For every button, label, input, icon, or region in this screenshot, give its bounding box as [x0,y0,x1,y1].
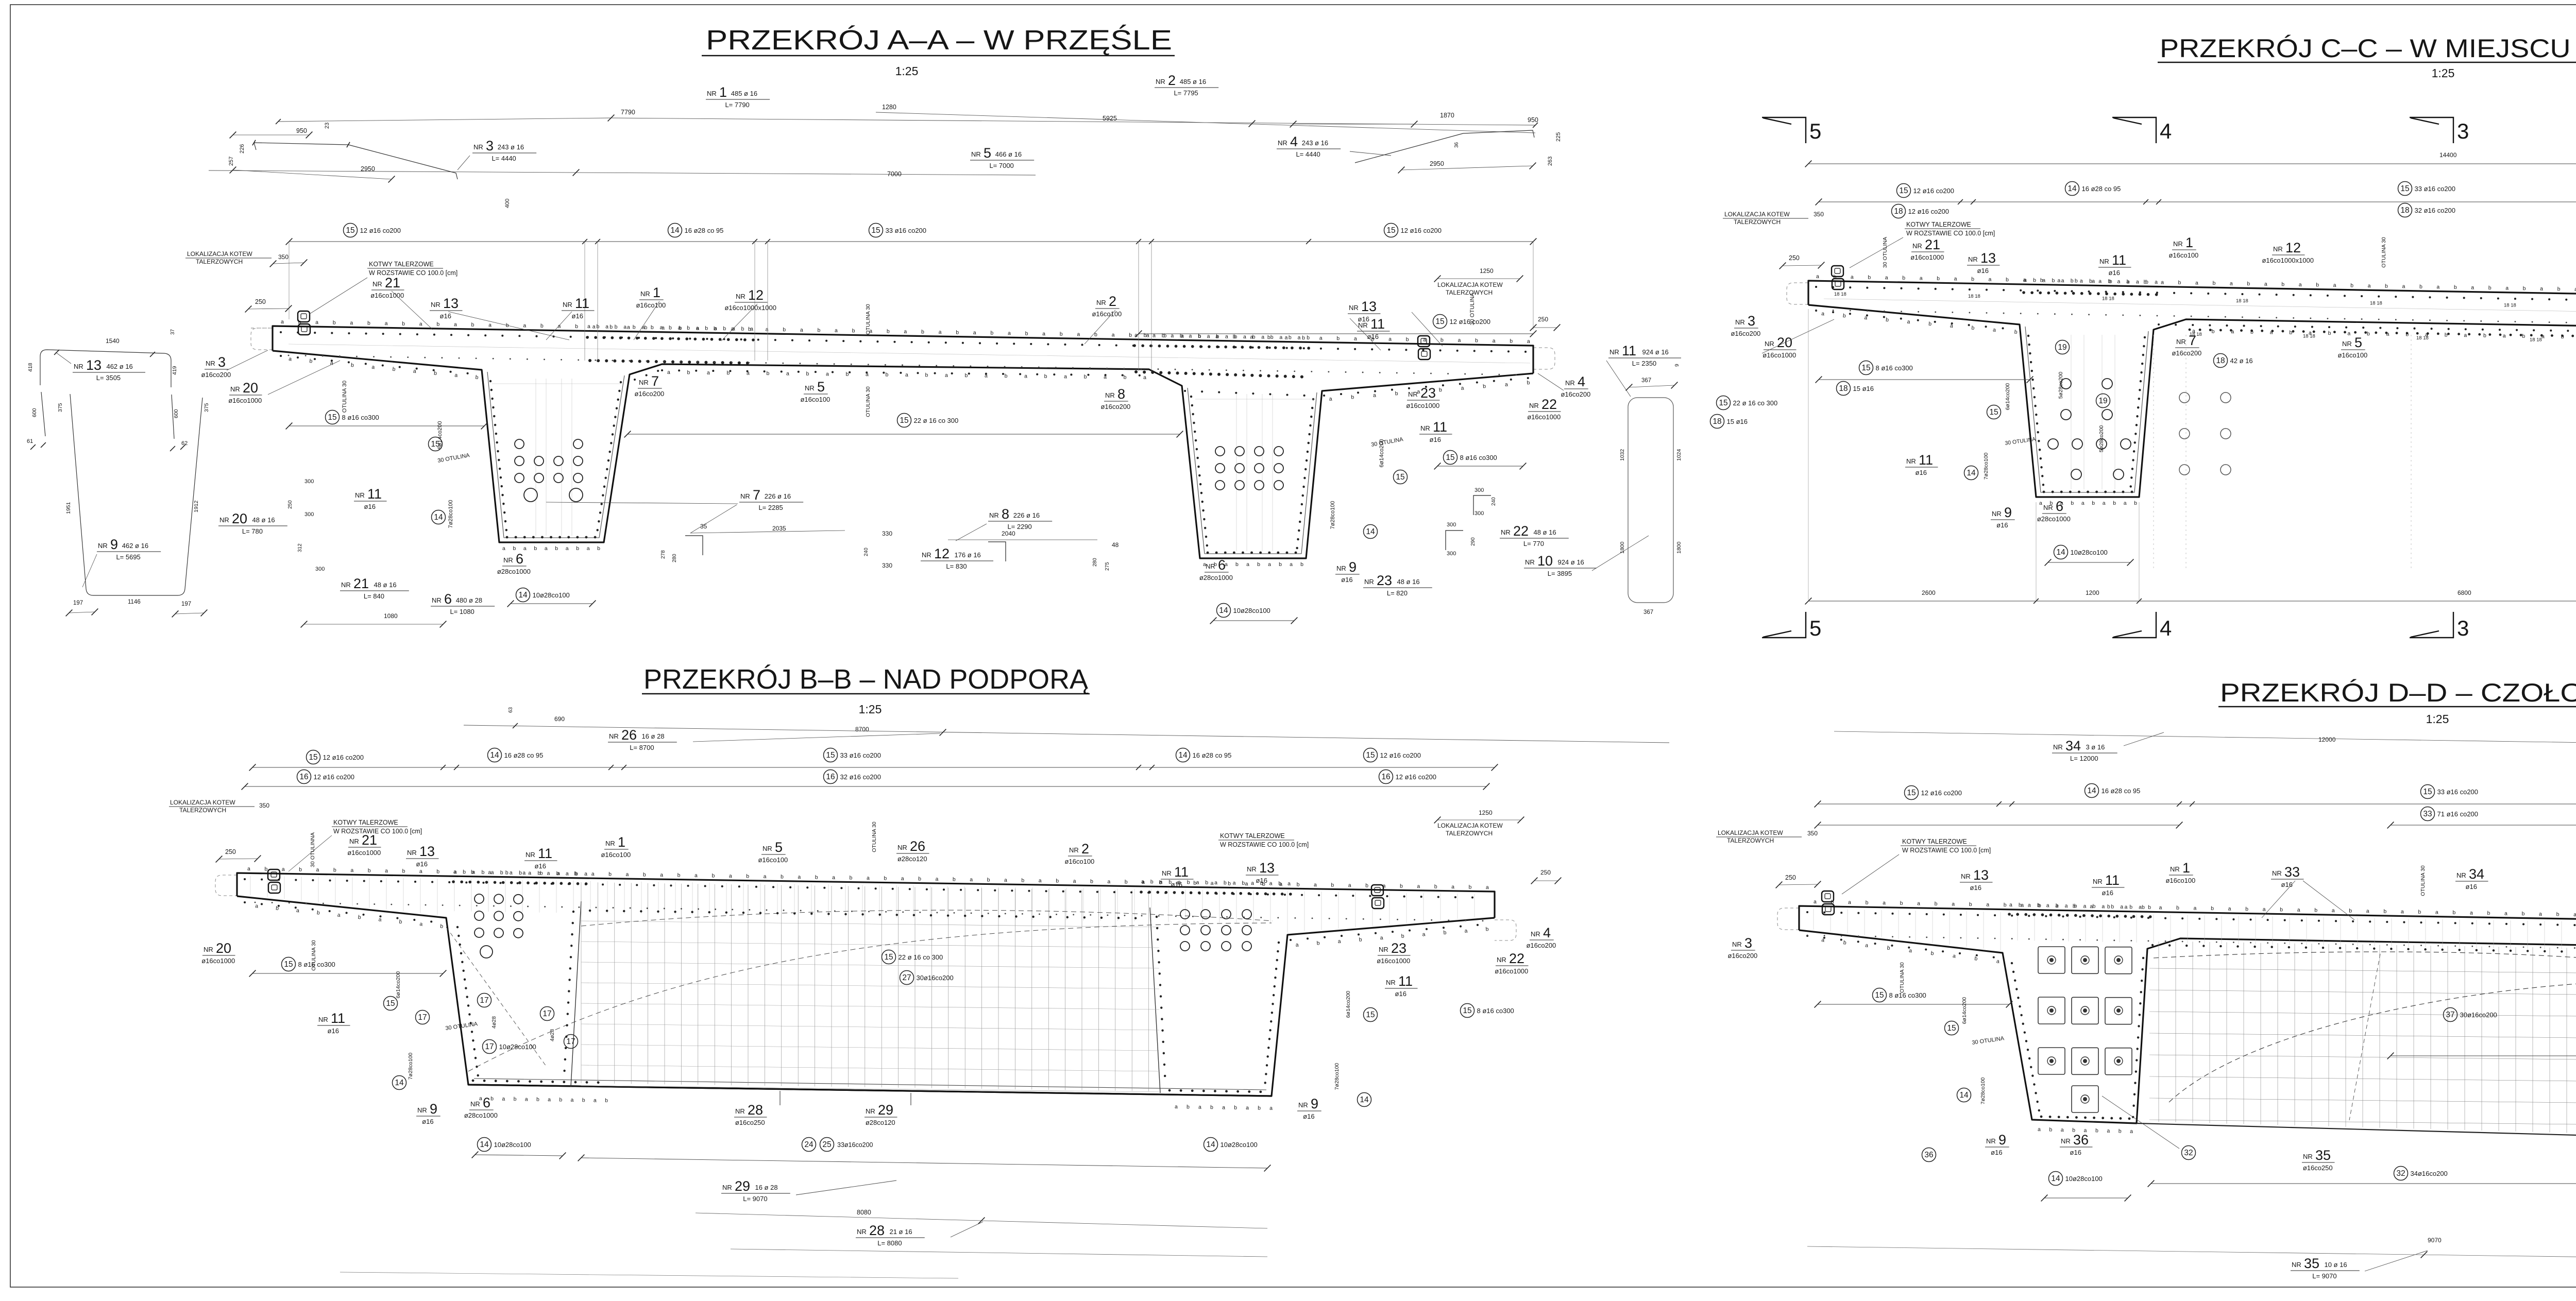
svg-text:29: 29 [735,1178,750,1194]
svg-text:NR: NR [1105,391,1115,399]
svg-text:NR: NR [230,385,240,393]
svg-text:18: 18 [1713,417,1721,426]
svg-text:33 ø16 co200: 33 ø16 co200 [886,227,927,234]
svg-text:2: 2 [1081,841,1089,857]
svg-text:16 ø28 co 95: 16 ø28 co 95 [685,227,724,234]
svg-text:34: 34 [2469,866,2484,882]
svg-text:15 ø16: 15 ø16 [1853,385,1874,392]
svg-text:L= 5695: L= 5695 [116,553,140,561]
svg-text:300: 300 [1475,510,1484,517]
svg-text:21: 21 [362,832,377,848]
svg-text:ø16: ø16 [440,312,451,320]
svg-text:ø16co200: ø16co200 [1727,952,1757,960]
svg-text:13: 13 [1980,250,1996,266]
svg-text:1: 1 [653,285,660,300]
svg-text:ø16: ø16 [2281,881,2293,888]
svg-text:1080: 1080 [384,612,398,620]
svg-text:18 18: 18 18 [1968,294,1980,299]
svg-text:34ø16co200: 34ø16co200 [2411,1170,2448,1177]
svg-text:15: 15 [284,960,293,969]
svg-text:14: 14 [434,513,443,522]
svg-text:14: 14 [480,1140,489,1149]
svg-text:L= 1080: L= 1080 [450,608,474,615]
svg-text:10ø28co100: 10ø28co100 [1233,607,1270,614]
svg-text:485 ø 16: 485 ø 16 [731,90,757,97]
svg-text:NR: NR [503,556,513,564]
svg-text:PRZEKRÓJ A–A – W PRZĘŚLE: PRZEKRÓJ A–A – W PRZĘŚLE [706,24,1172,56]
svg-text:15: 15 [1989,408,1998,417]
svg-text:250: 250 [1789,254,1800,262]
svg-text:367: 367 [1643,609,1653,615]
svg-text:2600: 2600 [1922,589,1936,596]
svg-text:NR: NR [971,150,981,158]
svg-text:37: 37 [170,329,176,335]
svg-text:7ø28co100: 7ø28co100 [408,1053,414,1080]
svg-text:LOKALIZACJA KOTEW: LOKALIZACJA KOTEW [1718,829,1783,836]
svg-text:14: 14 [518,591,528,600]
svg-text:NR: NR [1992,510,2002,518]
svg-text:1:25: 1:25 [895,64,919,78]
svg-text:NR: NR [1735,318,1745,326]
svg-text:19: 19 [2098,397,2107,405]
svg-text:ø16co100: ø16co100 [2168,251,2198,259]
svg-text:30 OTULINA: 30 OTULINA [1882,237,1888,268]
svg-text:NR: NR [897,844,907,851]
svg-text:ø16: ø16 [535,862,546,870]
svg-text:330: 330 [882,562,892,569]
svg-text:1024: 1024 [1676,449,1682,461]
svg-text:ø16: ø16 [416,860,428,868]
svg-text:15: 15 [1366,751,1375,760]
svg-text:243 ø 16: 243 ø 16 [1302,139,1328,147]
svg-text:7000: 7000 [887,170,902,178]
svg-text:ø28co1000: ø28co1000 [497,568,531,575]
svg-text:L= 840: L= 840 [364,592,384,600]
svg-text:418: 418 [27,363,33,372]
svg-text:13: 13 [443,296,459,311]
svg-text:4: 4 [1578,374,1585,389]
svg-text:240: 240 [1491,497,1497,506]
svg-text:OTULINA 30: OTULINA 30 [342,381,348,413]
svg-text:14: 14 [2051,1174,2060,1183]
svg-text:22 ø 16 co 300: 22 ø 16 co 300 [899,953,943,961]
svg-text:ø28co1000: ø28co1000 [2037,515,2071,523]
svg-text:ø16: ø16 [364,503,376,510]
svg-text:5: 5 [2354,335,2362,350]
svg-text:W ROZSTAWIE CO 100.0 [cm]: W ROZSTAWIE CO 100.0 [cm] [369,269,457,277]
svg-text:36: 36 [2073,1132,2089,1148]
svg-text:21: 21 [385,275,400,290]
svg-text:15: 15 [1386,226,1395,235]
svg-text:TALERZOWYCH: TALERZOWYCH [1446,830,1493,837]
svg-text:TALERZOWYCH: TALERZOWYCH [196,258,243,265]
svg-text:14: 14 [1178,751,1188,760]
svg-text:33: 33 [2423,810,2432,818]
svg-text:18 18: 18 18 [2303,334,2315,339]
svg-text:22: 22 [1509,951,1524,966]
svg-text:6ø14co200: 6ø14co200 [1961,997,1968,1024]
svg-text:6: 6 [483,1095,490,1110]
svg-text:32 ø16 co200: 32 ø16 co200 [2415,207,2456,214]
svg-text:9: 9 [1311,1096,1318,1111]
svg-text:1800: 1800 [1676,541,1682,554]
svg-text:ø16: ø16 [1996,521,2008,529]
svg-text:28: 28 [748,1102,763,1118]
svg-text:PRZEKRÓJ B–B – NAD PODPORĄ: PRZEKRÓJ B–B – NAD PODPORĄ [643,664,1089,695]
svg-text:10ø28co100: 10ø28co100 [499,1043,536,1051]
svg-text:L= 7000: L= 7000 [989,162,1013,169]
svg-text:12 ø16 co200: 12 ø16 co200 [360,227,401,234]
svg-text:15: 15 [1435,317,1444,326]
svg-text:26: 26 [910,838,925,854]
svg-text:NR: NR [1961,872,1971,880]
svg-text:9: 9 [430,1101,437,1117]
svg-text:ø28co120: ø28co120 [897,855,927,863]
svg-text:23: 23 [1391,940,1406,956]
svg-text:NR: NR [922,551,931,559]
svg-text:4: 4 [2160,119,2172,143]
svg-text:8 ø16 co300: 8 ø16 co300 [1477,1007,1514,1015]
svg-text:NR: NR [341,581,351,589]
svg-text:ø16: ø16 [1171,881,1182,888]
svg-text:18 18: 18 18 [2102,296,2114,302]
svg-text:ø16co200: ø16co200 [1561,390,1590,398]
svg-text:1:25: 1:25 [2432,66,2455,80]
svg-text:3: 3 [2457,119,2469,143]
svg-text:NR: NR [736,293,745,300]
svg-text:8 ø16 co300: 8 ø16 co300 [298,961,335,968]
svg-text:NR: NR [722,1184,732,1191]
svg-text:NR: NR [639,379,649,386]
svg-text:ø16co1000: ø16co1000 [1377,957,1410,965]
svg-text:L= 780: L= 780 [242,527,263,535]
svg-text:NR: NR [1379,946,1388,953]
svg-text:15: 15 [900,416,908,425]
svg-text:5: 5 [1809,616,1821,640]
svg-text:NR: NR [417,1106,427,1114]
svg-text:22 ø 16 co 300: 22 ø 16 co 300 [914,417,959,424]
svg-text:10ø28co100: 10ø28co100 [1221,1141,1258,1149]
svg-text:48 ø 16: 48 ø 16 [1533,528,1556,536]
svg-text:5: 5 [775,840,783,855]
svg-text:250: 250 [225,848,236,855]
svg-text:14: 14 [1206,1140,1215,1149]
svg-text:NR: NR [473,143,483,151]
svg-text:NR: NR [1525,558,1535,566]
svg-text:NR: NR [1986,1137,1996,1145]
svg-text:300: 300 [1447,522,1456,528]
svg-text:280: 280 [1092,558,1098,567]
svg-text:17: 17 [480,996,488,1005]
svg-text:32 ø16 co200: 32 ø16 co200 [840,773,882,781]
svg-text:14: 14 [1959,1091,1969,1100]
svg-text:10ø28co100: 10ø28co100 [533,591,570,599]
svg-text:7ø28co100: 7ø28co100 [448,500,454,528]
svg-text:6ø14co200: 6ø14co200 [1345,991,1351,1018]
svg-text:14: 14 [1360,1095,1369,1104]
svg-text:ø16co100: ø16co100 [1064,858,1094,865]
svg-text:12 ø16 co200: 12 ø16 co200 [1921,789,1962,797]
svg-text:ø16: ø16 [2102,889,2113,897]
svg-text:10: 10 [1537,553,1553,569]
svg-text:ø16co1000: ø16co1000 [347,849,381,857]
svg-text:18: 18 [1839,384,1848,393]
svg-text:ø16: ø16 [1991,1149,2002,1156]
svg-text:3: 3 [2457,616,2469,640]
svg-text:ø16co1000: ø16co1000 [228,397,262,404]
svg-text:L= 830: L= 830 [946,562,967,570]
svg-text:1146: 1146 [128,599,141,605]
svg-text:1280: 1280 [882,104,896,111]
svg-text:ø28co1000: ø28co1000 [1199,574,1233,581]
svg-text:11: 11 [2112,252,2126,268]
svg-text:KOTWY TALERZOWE: KOTWY TALERZOWE [1906,221,1971,228]
svg-text:NR: NR [204,946,213,953]
svg-text:8: 8 [1117,386,1125,402]
svg-text:5: 5 [1809,119,1821,143]
svg-text:L= 7795: L= 7795 [1174,89,1198,97]
svg-text:15: 15 [1875,991,1884,1000]
svg-text:33 ø16 co200: 33 ø16 co200 [2415,185,2456,193]
svg-text:NR: NR [2272,869,2282,877]
svg-text:ø16co1000: ø16co1000 [201,957,235,965]
svg-text:6: 6 [2056,499,2063,514]
svg-text:36: 36 [1924,1151,1933,1159]
svg-text:21: 21 [353,576,369,591]
svg-text:ø16co200: ø16co200 [634,390,664,398]
svg-text:ø16co1000: ø16co1000 [1762,351,1796,359]
svg-text:19: 19 [2058,343,2066,352]
svg-text:33: 33 [2284,864,2300,880]
svg-text:6: 6 [516,551,523,567]
svg-text:2: 2 [1109,294,1116,309]
svg-text:15: 15 [1899,186,1908,195]
svg-text:225: 225 [1555,132,1562,142]
svg-text:5925: 5925 [1103,115,1117,122]
svg-text:62: 62 [181,440,188,447]
svg-text:7ø28co100: 7ø28co100 [1983,453,1989,480]
svg-text:1800: 1800 [1619,541,1625,554]
svg-text:462 ø 16: 462 ø 16 [122,542,148,550]
svg-text:367: 367 [1641,378,1651,384]
svg-text:KOTWY TALERZOWE: KOTWY TALERZOWE [369,261,434,268]
svg-text:OTULINA 30: OTULINA 30 [865,386,871,417]
svg-text:9: 9 [1349,559,1357,575]
svg-text:1870: 1870 [1440,112,1454,119]
svg-text:250: 250 [1540,869,1551,876]
svg-text:33ø16co200: 33ø16co200 [837,1141,873,1149]
svg-text:W ROZSTAWIE CO 100.0 [cm]: W ROZSTAWIE CO 100.0 [cm] [1902,847,1991,854]
svg-text:400: 400 [504,199,511,208]
svg-text:NR: NR [318,1016,328,1023]
svg-text:1250: 1250 [1479,809,1493,816]
svg-text:11: 11 [331,1011,345,1026]
svg-text:690: 690 [554,715,565,723]
svg-text:10ø28co100: 10ø28co100 [494,1141,531,1149]
svg-text:ø16: ø16 [422,1118,433,1125]
svg-text:NR: NR [1336,564,1346,572]
svg-text:L= 8080: L= 8080 [877,1239,902,1247]
svg-text:1: 1 [2182,860,2190,876]
svg-text:48 ø 16: 48 ø 16 [1397,578,1419,586]
svg-text:NR: NR [605,840,615,847]
svg-text:2035: 2035 [772,525,786,532]
svg-text:ø16co200: ø16co200 [2172,349,2201,357]
svg-text:8 ø16 co300: 8 ø16 co300 [342,414,379,421]
svg-text:600: 600 [31,408,38,417]
svg-text:350: 350 [278,253,289,261]
svg-text:15: 15 [2400,184,2409,193]
svg-text:NR: NR [1408,390,1418,398]
svg-text:15 ø16: 15 ø16 [1727,418,1748,425]
svg-text:NR: NR [1162,869,1172,877]
svg-text:5ø28co200: 5ø28co200 [2098,425,2105,453]
svg-text:ø16co100: ø16co100 [601,851,631,859]
svg-text:197: 197 [181,601,191,607]
svg-text:ø16: ø16 [1977,267,1989,275]
svg-text:ø16co1000: ø16co1000 [1527,413,1561,421]
svg-text:9: 9 [1674,364,1680,367]
svg-text:21 ø 16: 21 ø 16 [889,1228,912,1236]
svg-text:15: 15 [1947,1024,1956,1033]
svg-text:NR: NR [2273,245,2283,253]
svg-text:11: 11 [538,846,552,861]
svg-text:48: 48 [1112,541,1119,549]
svg-text:12: 12 [2285,240,2301,255]
svg-text:4: 4 [2160,616,2172,640]
svg-text:11: 11 [1622,343,1636,358]
svg-text:15: 15 [826,751,835,760]
svg-text:NR: NR [1206,562,1215,570]
svg-text:L= 3895: L= 3895 [1548,570,1572,577]
svg-text:1: 1 [2185,235,2193,250]
svg-text:950: 950 [296,127,307,134]
svg-text:16: 16 [1381,773,1390,781]
svg-text:NR: NR [1732,940,1742,948]
svg-text:226: 226 [239,144,245,153]
svg-text:21: 21 [1925,237,1940,252]
svg-text:14: 14 [395,1079,404,1087]
svg-text:20: 20 [232,511,247,526]
svg-text:NR: NR [2176,338,2186,346]
svg-text:ø16co200: ø16co200 [1526,941,1556,949]
svg-text:8 ø16 co300: 8 ø16 co300 [1876,364,1913,372]
svg-text:3: 3 [1744,935,1752,951]
svg-text:NR: NR [2053,743,2063,751]
svg-text:11: 11 [1398,973,1413,989]
svg-text:3: 3 [486,138,494,153]
svg-text:NR: NR [470,1100,480,1108]
svg-text:300: 300 [304,478,314,485]
svg-text:36: 36 [1454,142,1460,148]
svg-text:924 ø 16: 924 ø 16 [1557,558,1584,566]
svg-text:250: 250 [1785,874,1796,881]
svg-text:W ROZSTAWIE CO 100.0 [cm]: W ROZSTAWIE CO 100.0 [cm] [1906,230,1995,237]
svg-text:1540: 1540 [106,337,120,345]
svg-text:466 ø 16: 466 ø 16 [995,150,1022,158]
svg-text:NR: NR [219,516,229,524]
svg-text:15: 15 [309,753,317,762]
svg-text:ø16: ø16 [2466,883,2477,891]
svg-text:OTULINA 30: OTULINA 30 [2420,865,2426,896]
svg-text:18: 18 [2400,206,2409,215]
svg-text:ø16co1000: ø16co1000 [1495,967,1528,975]
svg-text:13: 13 [419,844,435,859]
svg-text:11: 11 [2105,872,2120,888]
svg-text:NR: NR [1609,348,1619,356]
svg-text:14: 14 [2056,548,2065,557]
svg-text:14: 14 [2087,786,2096,795]
svg-text:NR: NR [432,596,442,604]
svg-text:13: 13 [1973,867,1989,883]
svg-text:7ø28co100: 7ø28co100 [1330,501,1336,529]
svg-text:NR: NR [1298,1101,1308,1109]
svg-text:22: 22 [1513,523,1529,539]
svg-text:29: 29 [878,1102,893,1118]
svg-text:12 ø16 co200: 12 ø16 co200 [1380,751,1421,759]
svg-text:9: 9 [2004,505,2012,520]
svg-text:18 18: 18 18 [1834,292,1846,297]
svg-text:30ø16co200: 30ø16co200 [917,974,954,982]
svg-text:8080: 8080 [857,1209,871,1216]
svg-text:18 18: 18 18 [2236,298,2248,304]
svg-text:63: 63 [508,707,514,713]
svg-text:ø16: ø16 [1341,576,1352,584]
svg-text:11: 11 [1370,316,1385,332]
svg-text:KOTWY TALERZOWE: KOTWY TALERZOWE [1902,838,1967,845]
svg-text:300: 300 [304,511,314,518]
svg-text:600: 600 [173,409,179,418]
svg-text:ø16: ø16 [2070,1149,2081,1156]
svg-text:ø16co1000x1000: ø16co1000x1000 [2262,256,2313,264]
svg-text:L= 9070: L= 9070 [743,1195,767,1203]
svg-text:3 ø 16: 3 ø 16 [2086,743,2105,751]
svg-text:ø16co100: ø16co100 [800,396,830,403]
svg-text:1: 1 [719,84,727,100]
svg-text:L= 2290: L= 2290 [1007,523,1031,530]
svg-text:PRZEKRÓJ D–D – CZOŁO BELKI: PRZEKRÓJ D–D – CZOŁO BELKI [2220,678,2576,707]
svg-text:32: 32 [2396,1169,2405,1178]
svg-text:290: 290 [1470,537,1476,546]
svg-text:4ø28: 4ø28 [549,1029,555,1041]
svg-text:6ø14co200: 6ø14co200 [395,971,401,999]
svg-text:NR: NR [1968,255,1978,263]
svg-text:17: 17 [418,1013,427,1022]
svg-text:NR: NR [740,492,750,500]
svg-text:6: 6 [1218,557,1226,573]
svg-text:350: 350 [1814,211,1824,218]
svg-text:34: 34 [2065,738,2081,754]
svg-text:ø16: ø16 [1395,990,1406,998]
svg-text:20: 20 [216,940,231,956]
svg-text:12 ø16 co200: 12 ø16 co200 [1908,208,1950,215]
svg-text:71 ø16 co200: 71 ø16 co200 [2437,810,2479,818]
svg-text:ø16: ø16 [1430,436,1441,443]
svg-text:226 ø 16: 226 ø 16 [1013,511,1040,519]
svg-text:NR: NR [1247,865,1257,873]
svg-text:L= 4440: L= 4440 [492,155,516,162]
svg-text:330: 330 [882,530,892,537]
svg-text:300: 300 [1475,487,1484,493]
svg-text:NR: NR [98,542,108,550]
svg-text:ø16co100: ø16co100 [2165,877,2195,884]
svg-text:7790: 7790 [621,109,635,116]
svg-text:NR: NR [1497,956,1506,964]
svg-text:250: 250 [255,298,266,305]
svg-text:OTULINA 30: OTULINA 30 [871,821,877,852]
svg-text:W ROZSTAWIE CO 100.0 [cm]: W ROZSTAWIE CO 100.0 [cm] [1220,841,1309,848]
svg-text:NR: NR [74,363,83,370]
